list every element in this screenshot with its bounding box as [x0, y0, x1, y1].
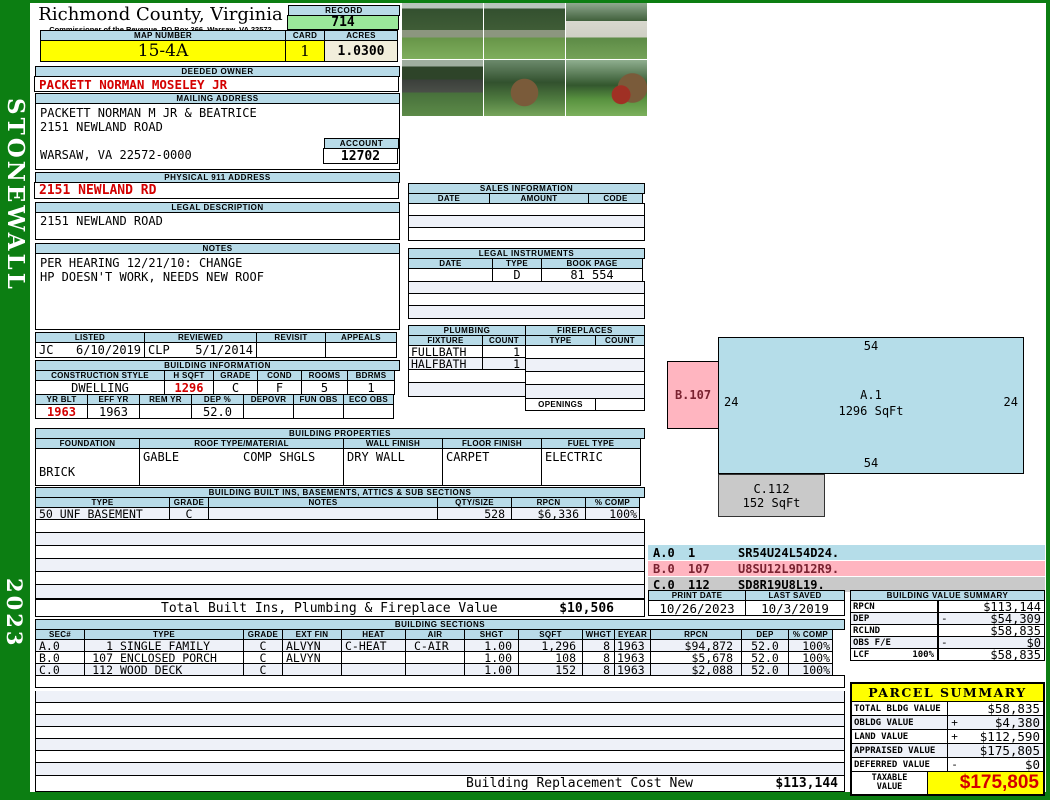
legend-vector: SR54U24L54D24.: [738, 546, 839, 560]
plumbing-empty-rows: [408, 369, 526, 397]
foundation-value: BRICK: [35, 448, 140, 486]
empty-row: [409, 370, 525, 383]
empty-row: [36, 763, 844, 775]
building-properties-section: BUILDING PROPERTIES FOUNDATION ROOF TYPE…: [35, 428, 645, 486]
roof-material-value: COMP SHGLS: [243, 450, 315, 464]
property-photo: [402, 60, 483, 116]
listed-value: JC6/10/2019: [35, 342, 145, 358]
bs-row-heat: [341, 663, 406, 676]
map-number-value: 15-4A: [40, 40, 286, 62]
built-ins-empty-rows: [35, 519, 645, 599]
rooms-value: 5: [301, 380, 348, 395]
bs-row-ext: [282, 663, 342, 676]
built-ins-row-notes: [208, 507, 438, 520]
record-box: RECORD 714: [288, 5, 400, 30]
openings-value: [595, 398, 645, 411]
bvs-value: $58,835: [951, 648, 1044, 662]
building-sections-table: BUILDING SECTIONS SEC# TYPE GRADE EXT FI…: [35, 619, 845, 688]
empty-row: [409, 216, 644, 228]
parcel-summary-title: PARCEL SUMMARY: [852, 684, 1043, 702]
built-ins-row: 50 UNF BASEMENT C 528 $6,336 100%: [35, 507, 645, 520]
empty-row: [526, 359, 644, 372]
mailing-address-box: PACKETT NORMAN M JR & BEATRICE 2151 NEWL…: [35, 103, 400, 170]
legend-row: A.0 1 SR54U24L54D24.: [648, 545, 1045, 560]
sketch-main-sqft: 1296 SqFt: [719, 404, 1023, 418]
legal-description-box: 2151 NEWLAND ROAD: [35, 212, 400, 240]
sales-amount-label: AMOUNT: [489, 193, 589, 204]
empty-row: [36, 546, 644, 559]
bdrms-value: 1: [347, 380, 395, 395]
built-ins-total-row: Total Built Ins, Plumbing & Fireplace Va…: [35, 599, 645, 617]
legend-code: 107: [688, 562, 738, 576]
bvs-label-text: RPCN: [853, 602, 875, 612]
sales-empty-rows: [408, 203, 645, 241]
print-date-value: 10/26/2023: [648, 600, 746, 616]
parcel-row-op: +: [948, 730, 961, 743]
wall-finish-value: DRY WALL: [343, 448, 443, 486]
remyr-value: [139, 404, 192, 419]
physical-address-section: PHYSICAL 911 ADDRESS 2151 NEWLAND RD: [35, 172, 400, 199]
legend-vector: U8SU12L9D12R9.: [738, 562, 839, 576]
replacement-cost-row: Building Replacement Cost New $113,144: [35, 775, 845, 792]
sales-date-label: DATE: [408, 193, 490, 204]
parcel-row-value: $0: [961, 757, 1043, 772]
effyr-value: 1963: [87, 404, 140, 419]
empty-row: [36, 691, 844, 703]
replacement-cost-label: Building Replacement Cost New: [466, 776, 693, 791]
plumbing-table: PLUMBING FIXTURE COUNT FULLBATH 1 HALFBA…: [408, 325, 526, 411]
built-ins-total-label: Total Built Ins, Plumbing & Fireplace Va…: [161, 601, 498, 616]
bs-row-rpcn: $2,088: [650, 663, 742, 676]
built-ins-row-grade: C: [169, 507, 209, 520]
taxable-value: $175,805: [928, 772, 1043, 794]
legal-instruments-section: LEGAL INSTRUMENTS DATE TYPE BOOK PAGE D …: [408, 248, 645, 319]
openings-row: OPENINGS: [525, 398, 645, 411]
sketch-main-label: A.1: [719, 388, 1023, 402]
deeded-owner-section: DEEDED OWNER PACKETT NORMAN MOSELEY JR: [35, 66, 400, 92]
li-row-book-page: 81 554: [541, 268, 643, 282]
parcel-row-value: $112,590: [961, 729, 1043, 744]
notes-section: NOTES PER HEARING 12/21/10: CHANGE HP DO…: [35, 243, 400, 330]
appeals-value: [325, 342, 397, 358]
empty-row: [36, 703, 844, 715]
plumbing-fixture: HALFBATH: [408, 357, 483, 370]
property-record-card: STONEWALL 2023 Richmond County, Virginia…: [0, 0, 1050, 800]
sketch-legend: A.0 1 SR54U24L54D24. B.0 107 U8SU12L9D12…: [648, 545, 1045, 592]
property-photo: [566, 60, 647, 116]
building-section-row: C.0 112 WOOD DECK C 1.00 152 8 1963 $2,0…: [35, 663, 845, 676]
bvs-row: LCF100% $58,835: [850, 648, 1045, 661]
built-ins-row-type: 50 UNF BASEMENT: [35, 507, 170, 520]
empty-row: [36, 715, 844, 727]
empty-row: [409, 282, 644, 294]
bs-row-eyear: 1963: [614, 663, 651, 676]
plumbing-fireplaces-section: PLUMBING FIXTURE COUNT FULLBATH 1 HALFBA…: [408, 325, 645, 411]
bottom-empty-rows: [35, 691, 845, 776]
reviewed-by: CLP: [148, 343, 170, 357]
grade-value: C: [213, 380, 258, 395]
legend-code: 1: [688, 546, 738, 560]
map-card-acres-table: MAP NUMBER CARD ACRES 15-4A 1 1.0300: [40, 30, 400, 62]
hsqft-value: 1296: [164, 380, 214, 395]
empty-row: [526, 385, 644, 398]
card-value: 1: [285, 40, 325, 62]
bs-row-dep: 52.0: [741, 663, 789, 676]
li-row-date: [408, 268, 493, 282]
parcel-row: TOTAL BLDG VALUE $58,835: [852, 702, 1043, 716]
built-ins-row-comp: 100%: [585, 507, 640, 520]
empty-row: [409, 228, 644, 240]
account-value: 12702: [323, 148, 398, 164]
built-ins-row-rpcn: $6,336: [511, 507, 586, 520]
acres-value: 1.0300: [324, 40, 398, 62]
listed-date: 6/10/2019: [76, 343, 141, 357]
property-photo: [484, 3, 565, 59]
empty-row: [409, 204, 644, 216]
bvs-label-text: DEP: [853, 614, 869, 624]
reviewed-value: CLP5/1/2014: [144, 342, 257, 358]
mailing-line1: PACKETT NORMAN M JR & BEATRICE: [36, 104, 399, 120]
bs-row-air: [405, 663, 465, 676]
built-ins-row-qty: 528: [437, 507, 512, 520]
bs-row-grade: C: [243, 663, 283, 676]
sketch-main-a1: 54 24 24 A.1 1296 SqFt 54: [718, 337, 1024, 474]
empty-row: [526, 346, 644, 359]
taxable-value-row: TAXABLE VALUE $175,805: [852, 772, 1043, 794]
parcel-row-value: $175,805: [961, 743, 1043, 758]
physical-address-value: 2151 NEWLAND RD: [34, 182, 399, 199]
parcel-summary: PARCEL SUMMARY TOTAL BLDG VALUE $58,835 …: [850, 682, 1045, 796]
parcel-row-value: $4,380: [961, 715, 1043, 730]
empty-row: [35, 675, 845, 688]
sales-information-section: SALES INFORMATION DATE AMOUNT CODE: [408, 183, 645, 241]
mailing-line2: 2151 NEWLAND ROAD: [36, 120, 399, 134]
parcel-row-label: OBLDG VALUE: [852, 716, 948, 729]
bs-row-comp: 100%: [788, 663, 833, 676]
bs-row-code: 112: [85, 663, 113, 677]
depovr-value: [243, 404, 294, 419]
revisit-value: [256, 342, 326, 358]
fireplaces-table: FIREPLACES TYPE COUNT OPENINGS: [525, 325, 645, 411]
last-saved-value: 10/3/2019: [745, 600, 845, 616]
plumbing-row: HALFBATH 1: [408, 357, 526, 370]
roof-type-value: GABLE: [143, 450, 243, 464]
parcel-row-op: -: [948, 758, 961, 771]
parcel-row-op: +: [948, 716, 961, 729]
legend-sec: A.0: [648, 546, 688, 560]
replacement-cost-value: $113,144: [728, 776, 838, 791]
legal-description-section: LEGAL DESCRIPTION 2151 NEWLAND ROAD: [35, 202, 400, 240]
parcel-row: DEFERRED VALUE - $0: [852, 758, 1043, 772]
roof-value: GABLE COMP SHGLS: [139, 448, 344, 486]
fireplaces-empty-rows: [525, 345, 645, 399]
print-saved-table: PRINT DATE LAST SAVED 10/26/2023 10/3/20…: [648, 590, 845, 616]
empty-row: [36, 559, 644, 572]
bvs-value-cell: $58,835: [937, 648, 1045, 661]
bs-row-whgt: 8: [582, 663, 615, 676]
legal-description-value: 2151 NEWLAND ROAD: [36, 213, 399, 228]
bvs-label-text: RCLND: [853, 626, 880, 636]
bs-row-shgt: 1.00: [464, 663, 519, 676]
parcel-row-value: $58,835: [961, 701, 1043, 716]
empty-row: [36, 727, 844, 739]
yrblt-value: 1963: [35, 404, 88, 419]
sketch-deck-label: C.112: [753, 482, 789, 496]
legend-row: B.0 107 U8SU12L9D12R9.: [648, 561, 1045, 576]
cond-value: F: [257, 380, 302, 395]
fireplace-count-label: COUNT: [595, 335, 645, 346]
property-photo: [484, 60, 565, 116]
reviewed-date: 5/1/2014: [195, 343, 253, 357]
li-row-type: D: [492, 268, 542, 282]
bvs-label-text: LCF: [853, 650, 869, 660]
empty-row: [36, 533, 644, 546]
county-title: Richmond County, Virginia: [38, 4, 283, 25]
property-photo: [402, 3, 483, 59]
taxable-label-line2: VALUE: [877, 783, 903, 792]
sales-code-label: CODE: [588, 193, 643, 204]
bs-row-sqft: 152: [518, 663, 583, 676]
parcel-row-label: TOTAL BLDG VALUE: [852, 702, 948, 715]
notes-line1: PER HEARING 12/21/10: CHANGE: [36, 254, 399, 270]
taxable-value-label: TAXABLE VALUE: [852, 772, 928, 794]
legal-instruments-empty-rows: [408, 281, 645, 319]
fireplace-type-label: TYPE: [525, 335, 596, 346]
empty-row: [409, 294, 644, 306]
empty-row: [409, 306, 644, 318]
bvs-label: LCF100%: [850, 648, 938, 661]
bs-row-sec: C.0: [35, 663, 85, 676]
listed-by: JC: [39, 343, 53, 357]
bvs-label-text: OBS F/E: [853, 638, 891, 648]
building-value-summary: BUILDING VALUE SUMMARY RPCN $113,144 DEP…: [850, 590, 1045, 661]
legend-sec: B.0: [648, 562, 688, 576]
sketch-porch-label: B.107: [675, 388, 711, 402]
parcel-row: LAND VALUE + $112,590: [852, 730, 1043, 744]
parcel-row: APPRAISED VALUE $175,805: [852, 744, 1043, 758]
built-ins-total-value: $10,506: [559, 601, 614, 616]
mailing-address-section: MAILING ADDRESS PACKETT NORMAN M JR & BE…: [35, 93, 400, 170]
dep-value: 52.0: [191, 404, 244, 419]
record-value: 714: [287, 15, 399, 30]
deeded-owner-value: PACKETT NORMAN MOSELEY JR: [34, 76, 399, 92]
card-canvas: Richmond County, Virginia Commissioner o…: [30, 3, 1046, 792]
empty-row: [409, 383, 525, 396]
empty-row: [526, 372, 644, 385]
plumbing-count: 1: [482, 357, 526, 370]
account-box: ACCOUNT 12702: [324, 138, 399, 164]
empty-row: [36, 520, 644, 533]
bs-row-name: WOOD DECK: [113, 663, 182, 677]
sketch-dim-bottom: 54: [719, 456, 1023, 470]
empty-row: [36, 751, 844, 763]
property-photo: [566, 3, 647, 59]
fuel-type-value: ELECTRIC: [541, 448, 641, 486]
empty-row: [36, 739, 844, 751]
legal-instrument-row: D 81 554: [408, 268, 645, 282]
parcel-row-label: LAND VALUE: [852, 730, 948, 743]
built-ins-section: BUILDING BUILT INS, BASEMENTS, ATTICS & …: [35, 487, 645, 599]
openings-label: OPENINGS: [525, 398, 596, 411]
empty-row: [36, 585, 644, 598]
district-vertical-label: STONEWALL: [2, 98, 29, 292]
bvs-pct: 100%: [912, 650, 937, 660]
building-information-section: BUILDING INFORMATION CONSTRUCTION STYLE …: [35, 360, 400, 419]
empty-row: [36, 572, 644, 585]
sketch-deck-sqft: 152 SqFt: [743, 496, 801, 510]
sketch-deck-c112: C.112 152 SqFt: [718, 474, 825, 517]
sketch-porch-b107: B.107: [667, 361, 719, 429]
year-vertical-label: 2023: [2, 578, 27, 648]
bs-row-type: 112 WOOD DECK: [84, 663, 244, 676]
notes-box: PER HEARING 12/21/10: CHANGE HP DOESN'T …: [35, 253, 400, 330]
parcel-row: OBLDG VALUE + $4,380: [852, 716, 1043, 730]
sketch-dim-top: 54: [719, 339, 1023, 353]
funobs-value: [293, 404, 344, 419]
property-photos: [402, 3, 647, 116]
construction-style-value: DWELLING: [35, 380, 165, 395]
notes-line2: HP DOESN'T WORK, NEEDS NEW ROOF: [36, 270, 399, 284]
ecoobs-value: [343, 404, 394, 419]
parcel-row-label: APPRAISED VALUE: [852, 744, 948, 757]
parcel-row-label: DEFERRED VALUE: [852, 758, 948, 771]
floor-finish-value: CARPET: [442, 448, 542, 486]
visits-table: LISTED REVIEWED REVISIT APPEALS JC6/10/2…: [35, 332, 400, 358]
